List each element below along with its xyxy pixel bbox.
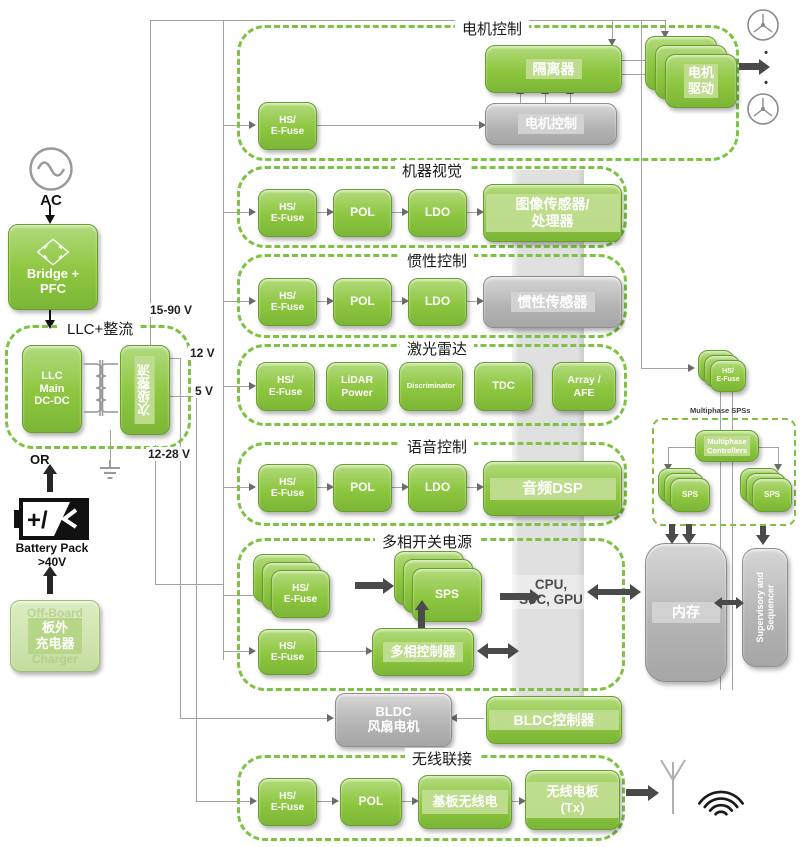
power-rail — [155, 445, 156, 584]
right-efuse-stack: HS/ E-Fuse — [698, 350, 746, 392]
multiphase-controllers-block: Multiphase Controllers — [695, 430, 759, 462]
discriminator-block: Discriminator — [399, 362, 463, 411]
power-rail — [196, 396, 197, 801]
ldo-label: LDO — [425, 481, 450, 495]
machine-vision-title: 机器视觉 — [395, 160, 469, 181]
motor-controller-block: 电机控制 — [485, 103, 617, 145]
baseboard-radio-label: 基板无线电 — [422, 790, 508, 814]
multiphase-controller-label: 多相控制器 — [383, 642, 462, 662]
audio-dsp-label: 音频DSP — [490, 478, 616, 500]
motor-controller-label: 电机控制 — [518, 114, 584, 134]
sps-stack-right: SPS — [740, 468, 792, 512]
voice-pol-block: POL — [333, 464, 392, 512]
inertial-hs-efuse-block: HS/ E-Fuse — [258, 278, 317, 326]
lidar-title: 激光雷达 — [400, 338, 474, 359]
sps-label: SPS — [435, 588, 459, 602]
image-sensor-block: 图像传感器/ 处理器 — [483, 184, 622, 242]
motor-icon — [746, 8, 780, 42]
motor-driver-label: 电机 驱动 — [684, 64, 718, 97]
baseboard-radio-block: 基板无线电 — [418, 775, 512, 829]
charger-ghost-text: Off-Board — [11, 607, 99, 621]
ac-source-icon — [28, 146, 74, 192]
hs-efuse-label: HS/ E-Fuse — [716, 368, 739, 384]
power-rail — [223, 20, 224, 660]
isolator-block: 隔离器 — [485, 45, 622, 93]
sps-to-memory-arrow — [686, 524, 692, 534]
sps-to-memory-arrow — [669, 524, 675, 534]
motor-driver-stack: 电机 驱动 — [645, 36, 737, 108]
motor-control-title: 电机控制 — [455, 18, 529, 39]
hs-efuse-label: HS/ E-Fuse — [269, 375, 302, 398]
vision-pol-block: POL — [333, 189, 392, 237]
bldc-fan-motor-block: BLDC 风扇电机 — [335, 693, 452, 747]
ldo-label: LDO — [425, 295, 450, 309]
secondary-rectifier-block: 次级整流 — [120, 345, 170, 435]
memory-label: 内存 — [652, 602, 720, 623]
sps-stack: SPS — [394, 551, 498, 639]
tx-to-antenna-arrow — [626, 789, 648, 796]
charger-to-battery-arrow — [47, 576, 53, 594]
bridge-pfc-label: Bridge + PFC — [27, 267, 79, 297]
bldc-fan-motor-label: BLDC 风扇电机 — [367, 705, 419, 735]
voice-hs-efuse-block: HS/ E-Fuse — [258, 464, 317, 512]
offboard-charger-block: Off-Board Charger 板外 充电器 — [10, 600, 100, 672]
arrowhead — [45, 215, 55, 224]
arrowhead — [327, 714, 334, 722]
tdc-block: TDC — [474, 362, 533, 411]
battery-to-llc-arrow — [47, 474, 53, 492]
sps-label: SPS — [682, 490, 698, 499]
memory-block: 内存 — [645, 543, 727, 682]
wireless-pol-block: POL — [340, 778, 402, 826]
arrowhead — [688, 364, 695, 372]
wire — [641, 368, 693, 369]
hs-efuse-label: HS/ E-Fuse — [271, 477, 304, 500]
audio-dsp-block: 音频DSP — [483, 461, 622, 516]
vision-hs-efuse-block: HS/ E-Fuse — [258, 189, 317, 237]
inertial-ldo-block: LDO — [408, 278, 467, 326]
supervisor-sequencer-block: Supervisory and Sequencer — [742, 548, 788, 667]
driver-to-motors-arrow — [739, 63, 759, 70]
voice-ldo-block: LDO — [408, 464, 467, 512]
sps-to-cpu-arrow — [500, 593, 530, 600]
pol-label: POL — [350, 206, 375, 220]
bldc-controller-label: BLDC控制器 — [489, 710, 619, 731]
motor-hs-efuse-block: HS/ E-Fuse — [258, 102, 317, 150]
motor-driver-block: 电机 驱动 — [665, 54, 737, 108]
battery-icon: +/ — [14, 497, 90, 541]
controller-to-sps-arrow — [418, 610, 425, 628]
llc-group-title: LLC+整流 — [60, 318, 140, 339]
wireless-tx-block: 无线电板 (Tx) — [525, 770, 620, 830]
transformer-icon — [82, 350, 120, 430]
wire — [155, 584, 223, 585]
multiphase-title: 多相开关电源 — [375, 531, 479, 552]
llc-main-dcdc-block: LLC Main DC-DC — [22, 345, 82, 433]
multiphase-efuse-stack: HS/ E-Fuse — [253, 554, 347, 634]
charger-ghost-text: Charger — [11, 653, 99, 667]
tdc-label: TDC — [492, 380, 515, 393]
image-sensor-label: 图像传感器/ 处理器 — [486, 194, 620, 232]
secondary-rectifier-label: 次级整流 — [135, 356, 155, 424]
bridge-pfc-block: Bridge + PFC — [8, 224, 98, 310]
multiphase-controllers-label: Multiphase Controllers — [704, 436, 750, 456]
antenna-icon — [656, 756, 690, 816]
wireless-title: 无线联接 — [405, 748, 479, 769]
sps-label: SPS — [764, 490, 780, 499]
soc-memory-double-arrow — [598, 589, 630, 595]
hs-efuse-label: HS/ E-Fuse — [271, 791, 304, 814]
rail-12-28v-label: 12-28 V — [146, 447, 192, 461]
hs-efuse-label: HS/ E-Fuse — [271, 641, 304, 664]
efuse-to-sps-arrow — [355, 582, 383, 589]
wire — [150, 20, 151, 345]
power-architecture-diagram: AC Bridge + PFC LLC+整流 LLC Main DC-DC 次级… — [0, 0, 800, 847]
lidar-hs-efuse-block: HS/ E-Fuse — [256, 362, 315, 411]
cpu-soc-gpu-label: CPU, SoC, GPU — [506, 575, 596, 609]
bldc-controller-block: BLDC控制器 — [486, 696, 622, 744]
svg-text:+/: +/ — [27, 507, 48, 534]
lidar-power-block: LiDAR Power — [326, 362, 388, 411]
multiphase-spss-label: Multiphase SPSs — [690, 406, 750, 415]
inertial-sensor-label: 惯性传感器 — [511, 292, 595, 313]
hs-efuse-label: HS/ E-Fuse — [271, 291, 304, 314]
rail-15-90v-label: 15-90 V — [148, 303, 194, 317]
sps-stack-left: SPS — [658, 468, 710, 512]
multiphase-hs-efuse-block: HS/ E-Fuse — [271, 570, 330, 618]
supervisor-sequencer-label: Supervisory and Sequencer — [755, 572, 776, 643]
hs-efuse-label: HS/ E-Fuse — [271, 115, 304, 138]
to-supervisor-arrow — [760, 526, 766, 535]
wire — [150, 20, 665, 21]
right-hs-efuse-block: HS/ E-Fuse — [710, 360, 746, 392]
ac-label: AC — [28, 192, 74, 209]
rail-5v-label: 5 V — [193, 384, 215, 398]
controller-soc-double-arrow — [488, 648, 508, 654]
wifi-icon — [694, 778, 748, 818]
pol-label: POL — [359, 795, 384, 809]
battery-pack-label: Battery Pack >40V — [0, 541, 104, 569]
array-afe-label: Array / AFE — [567, 374, 600, 398]
hs-efuse-label: HS/ E-Fuse — [284, 583, 317, 606]
discriminator-label: Discriminator — [407, 382, 455, 391]
pol-label: POL — [350, 481, 375, 495]
voice-title: 语音控制 — [400, 436, 474, 457]
llc-main-label: LLC Main DC-DC — [34, 370, 69, 408]
hs-efuse-label: HS/ E-Fuse — [271, 202, 304, 225]
wireless-hs-efuse-block: HS/ E-Fuse — [258, 778, 317, 826]
ldo-label: LDO — [425, 206, 450, 220]
inertial-sensor-block: 惯性传感器 — [483, 276, 622, 328]
isolator-label: 隔离器 — [526, 59, 582, 80]
lidar-power-label: LiDAR Power — [341, 374, 373, 398]
memory-supervisor-double-arrow — [722, 600, 736, 605]
bridge-rectifier-icon — [36, 237, 70, 267]
array-afe-block: Array / AFE — [552, 362, 616, 411]
rail-12v-label: 12 V — [188, 346, 217, 360]
sps-block: SPS — [670, 478, 710, 512]
vision-ldo-block: LDO — [408, 189, 467, 237]
wire — [180, 718, 333, 719]
ground-icon — [98, 460, 122, 480]
sps-block: SPS — [752, 478, 792, 512]
inertial-pol-block: POL — [333, 278, 392, 326]
inertial-title: 惯性控制 — [400, 250, 474, 271]
multiphase-hs-efuse2-block: HS/ E-Fuse — [258, 629, 317, 675]
motor-icon — [746, 92, 780, 126]
wireless-tx-label: 无线电板 (Tx) — [526, 782, 619, 817]
offboard-charger-label: 板外 充电器 — [28, 618, 81, 653]
pol-label: POL — [350, 295, 375, 309]
